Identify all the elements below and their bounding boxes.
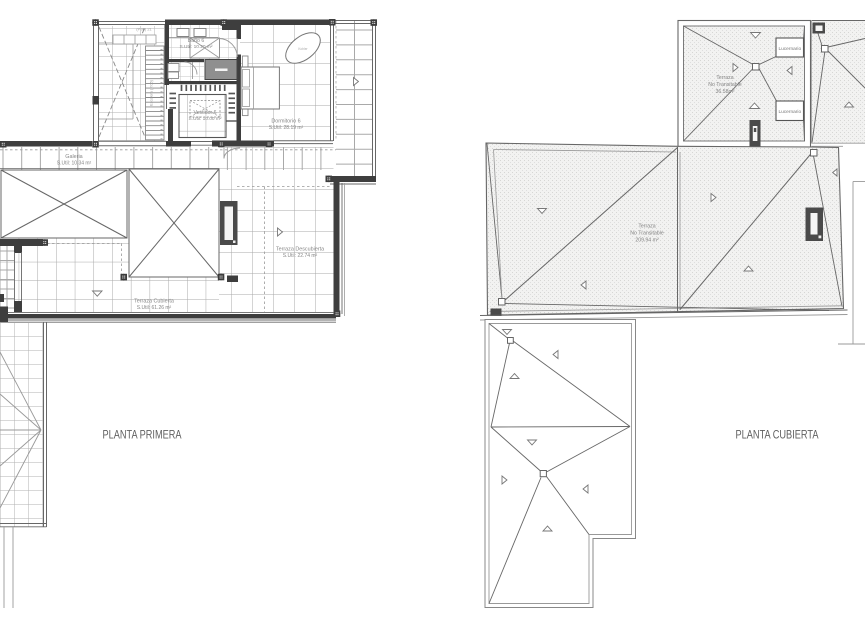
svg-text:209.94 m²: 209.94 m² [635,238,659,244]
svg-text:S.Util: 10.20 m²: S.Util: 10.20 m² [179,44,212,50]
svg-text:Baño 6: Baño 6 [188,38,205,44]
svg-text:Escalera (P.06): Escalera (P.06) [150,79,154,105]
svg-text:No Transitable: No Transitable [708,82,742,88]
svg-text:Vestidor 6: Vestidor 6 [193,110,216,116]
svg-text:Terraza: Terraza [716,75,733,81]
svg-text:Lucernario: Lucernario [778,109,801,115]
svg-text:S.Util: 61.26 m²: S.Util: 61.26 m² [137,305,172,311]
svg-text:Lucernario: Lucernario [778,46,801,52]
svg-text:36.58m²: 36.58m² [715,89,734,95]
svg-text:PLANTA CUBIERTA: PLANTA CUBIERTA [736,430,819,442]
svg-text:Terraza: Terraza [638,224,655,230]
svg-text:(P.06) 21: (P.06) 21 [136,28,151,32]
svg-text:S.Util: 10.00 m²: S.Util: 10.00 m² [188,116,221,122]
svg-text:PLANTA PRIMERA: PLANTA PRIMERA [103,430,182,442]
svg-text:Kohler: Kohler [298,47,308,51]
svg-text:Galeria: Galeria [65,154,82,160]
svg-text:Terraza Cubierta: Terraza Cubierta [134,299,174,305]
svg-text:No Transitable: No Transitable [630,231,664,237]
svg-text:Terraza Descubierta: Terraza Descubierta [276,247,324,253]
svg-text:S.Util: 28.19 m²: S.Util: 28.19 m² [269,125,304,131]
svg-text:Dormitorio 6: Dormitorio 6 [271,119,300,125]
svg-text:S.Util: 10.34 m²: S.Util: 10.34 m² [57,161,92,167]
svg-text:S.Util: 22.74 m²: S.Util: 22.74 m² [283,253,318,259]
